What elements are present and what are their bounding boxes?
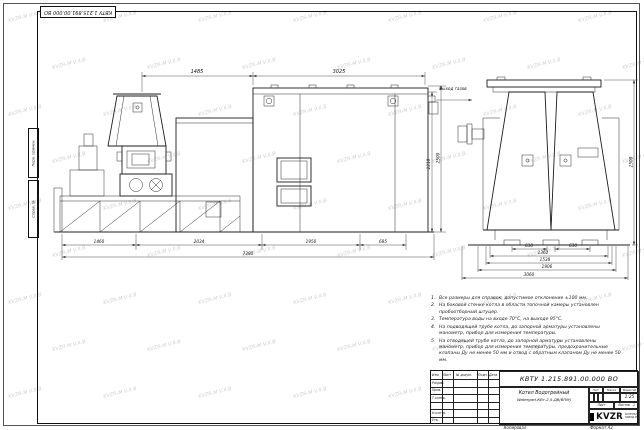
side-view-boiler-end [458,77,630,245]
col-header-date: Дата [489,373,499,377]
kvzr-logo-icon [589,413,594,421]
dim-label: 630 [569,243,577,248]
company-logo-cell: KVZR КОТЕЛЬНЫЙ ЗАВОД.РФ [589,409,639,426]
row-label-nkontr: Н.контр. [432,411,452,415]
col-header-doc: № докум. [456,373,476,377]
technical-drawing: 1485 3025 2210 2500 1460 2034 1950 685 [0,0,644,430]
dim-label: 1538 [540,257,551,262]
dim-label: 7280 [243,251,254,256]
scale-value-cell: 1:25 [620,393,639,402]
note-number: 1. [431,296,439,302]
dim-label: 3025 [333,69,346,75]
format-label: Формат А2 [565,425,638,430]
grid-line [431,402,499,403]
row-label-tkontr: Т.контр. [432,396,452,400]
note-text: На подводящей трубе котла, до запорной а… [439,325,623,338]
product-name-line1: Котел Водогрейный [519,391,570,396]
note-number: 3. [431,317,439,323]
side-view-dimensions: 630 630 1362 1538 1906 3060 2500 [462,80,638,280]
sheets-value: 1 [633,403,635,407]
note-item: 5. На отводящей трубе котла, до запорной… [431,339,623,365]
dim-label: 1362 [538,250,549,255]
technical-notes: 1. Все размеры для справок, допустимое о… [431,296,623,365]
col-header-list: Лист [443,373,453,377]
main-view-boiler-front [54,85,438,232]
inlet-pipe-flange [458,124,484,144]
note-item: 1. Все размеры для справок, допустимое о… [431,296,623,302]
row-label-razrab: Разраб. [432,381,452,385]
sheets-label: Листов [618,403,630,407]
dim-label: 685 [379,239,387,244]
product-name-cell: Котел Водогрейный Watergart-КВт-2,5-ДВ(В… [499,387,589,425]
note-text: Температура воды на входе 70°С, на выход… [439,317,623,323]
note-number: 5. [431,339,439,365]
dim-label: 1906 [542,264,553,269]
dim-label: 3060 [524,272,535,277]
title-block: Изм. Лист № докум. Подп. Дата Разраб. Пр… [430,370,638,424]
kvzr-logo-text: KVZR [596,412,623,422]
dim-label: 1485 [191,69,204,75]
dim-label: 2500 [629,156,634,167]
sheet-cell: Лист [589,402,614,409]
note-item: 3. Температура воды на входе 70°С, на вы… [431,317,623,323]
dim-label: 2500 [436,152,441,163]
note-item: 4. На подводящей трубе котла, до запорно… [431,325,623,338]
product-name-line2: Watergart-КВт-2,5-ДВ(ВПМ) [517,397,571,402]
gas-exit-label: Выход газов [439,86,467,91]
row-label-prov: Пров. [432,388,452,392]
mass-cell [603,393,620,402]
dim-label: 1460 [94,239,105,244]
boiler-body [176,85,438,232]
col-header-izm: Изм. [432,373,442,377]
kvzr-logo-subtext: КОТЕЛЬНЫЙ ЗАВОД.РФ [625,414,639,420]
fuel-hopper-unit [108,94,172,196]
doc-number-cell: КВТУ 1.215.891.00.000 ВО [499,371,639,387]
dim-label: 630 [525,243,533,248]
sheets-cell: Листов 1 [614,402,639,409]
note-item: 2. На боковой стенке котла в области топ… [431,303,623,316]
dim-label: 2210 [426,158,431,169]
feeder-platform [54,134,240,232]
drawing-sheet: KVZR-M V.X.BKVZR-M V.X.BKVZR-M V.X.BKVZR… [0,0,644,430]
dim-label: 1950 [306,239,317,244]
row-label-utv: Утв. [432,418,452,422]
note-text: На отводящей трубе котла, до запорной ар… [439,339,623,365]
logo-sub-line2: ЗАВОД.РФ [625,417,639,420]
dim-label: 2034 [194,239,205,244]
col-header-sign: Подп. [478,373,488,377]
note-text: Все размеры для справок, допустимое откл… [439,296,623,302]
note-text: На боковой стенке котла в области топочн… [439,303,623,316]
note-number: 4. [431,325,439,338]
note-number: 2. [431,303,439,316]
